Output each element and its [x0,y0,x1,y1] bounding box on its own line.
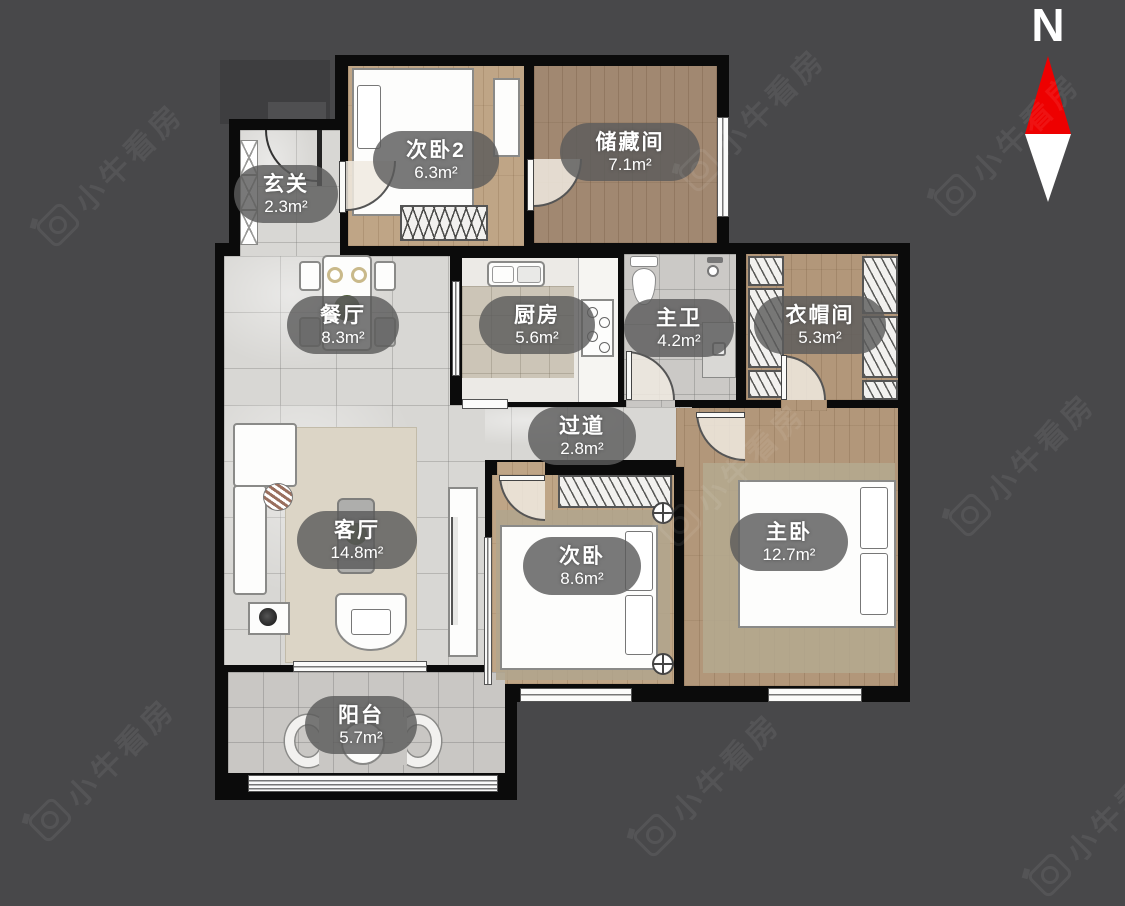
room-name: 次卧 [559,544,605,569]
kitchen-sliding-door [462,399,508,409]
compass: N [1016,2,1080,202]
room-label-keting: 客厅 14.8m² [297,511,417,569]
watermark-text: 小牛看房 [54,686,184,816]
storage-window [717,117,729,217]
watermark-logo-icon [631,811,679,859]
room-area: 14.8m² [331,543,384,563]
watermark-text: 小牛看房 [62,91,192,221]
room-name: 主卧 [766,520,812,545]
chair [299,261,321,291]
watermark: 小牛看房 [22,686,185,849]
watermark-logo-icon [946,491,994,539]
watermark: 小牛看房 [942,381,1105,544]
wardrobe [748,256,784,286]
room-label-canting: 餐厅 8.3m² [287,296,399,354]
bathroom-door-leaf [626,351,632,400]
lounge-chair [335,593,407,651]
striped-pillow [263,483,293,511]
room-name: 客厅 [334,518,380,543]
ceiling-fixture-icon [652,502,674,524]
room-label-chucangjian: 储藏间 7.1m² [560,123,700,181]
room-name: 过道 [559,414,605,439]
balcony-window-band [248,775,498,792]
watermark-logo-icon [34,201,82,249]
watermark-logo-icon [26,796,74,844]
wardrobe-bedroom2-2 [400,205,488,241]
room-area: 2.3m² [264,197,307,217]
room-label-ciwo: 次卧 8.6m² [523,537,641,595]
room-label-zhuwo: 主卧 12.7m² [730,513,848,571]
ceiling-fixture-icon [652,653,674,675]
room-label-xuanguan: 玄关 2.3m² [234,165,338,223]
flower-icon [259,608,277,626]
watermark-logo-icon [931,171,979,219]
room-name: 主卫 [656,306,702,331]
tv-icon [451,517,458,625]
room-name: 厨房 [514,303,560,328]
plate [351,267,367,283]
sofa-body [233,485,267,595]
bedroom2-2-door-leaf [339,161,346,213]
room-area: 5.3m² [798,328,841,348]
watermark-text: 小牛看房 [1054,741,1125,871]
room-area: 6.3m² [414,163,457,183]
bathroom-door-gap [626,400,675,407]
room-area: 5.6m² [515,328,558,348]
chair [374,261,396,291]
room-area: 7.1m² [608,155,651,175]
kitchen-window [452,281,460,376]
room-area: 8.6m² [560,569,603,589]
room-area: 12.7m² [763,545,816,565]
floor-plan: 玄关 2.3m² 次卧2 6.3m² 储藏间 7.1m² 餐厅 8.3m² 厨房… [215,55,910,800]
room-label-ciwo2: 次卧2 6.3m² [373,131,499,189]
bedroom2-side-window [484,537,492,685]
entry-threshold [268,102,326,119]
room-area: 2.8m² [560,439,603,459]
wardrobe [748,370,784,398]
watermark-logo-icon [1026,851,1074,899]
kitchen-sink [487,261,545,287]
room-area: 8.3m² [321,328,364,348]
closet-door-gap [781,400,827,411]
room-area: 4.2m² [657,331,700,351]
pillow [860,553,888,615]
bedside-unit [493,78,520,157]
wardrobe [862,380,898,400]
room-name: 餐厅 [320,303,366,328]
pillow [860,487,888,549]
balcony-sliding-door [293,661,427,672]
room-name: 储藏间 [596,130,665,155]
sofa-chaise [233,423,297,487]
room-label-zhuwei: 主卫 4.2m² [624,299,734,357]
watermark: 小牛看房 [1022,741,1125,904]
room-name: 玄关 [263,172,309,197]
bedroom2-door-leaf [499,475,545,481]
watermark-text: 小牛看房 [974,381,1104,511]
room-name: 阳台 [338,703,384,728]
closet-door-leaf [781,355,787,400]
plate [327,267,343,283]
room-label-chufang: 厨房 5.6m² [479,296,595,354]
master-bottom-window [768,688,862,702]
compass-arrow-icon [1025,56,1071,202]
room-label-yimaojian: 衣帽间 5.3m² [754,296,886,354]
compass-north-label: N [1016,2,1080,48]
room-label-guodao: 过道 2.8m² [528,407,636,465]
bedroom2-bottom-window [520,688,632,702]
pillow [625,595,653,655]
wardrobe-bedroom2 [558,475,672,508]
pillow [357,85,381,149]
master-door-leaf [696,412,745,418]
room-label-yangtai: 阳台 5.7m² [305,696,417,754]
room-name: 次卧2 [406,138,466,163]
floorplan-page: { "compass": { "north_label": "N" }, "wa… [0,0,1125,844]
room-name: 衣帽间 [786,303,855,328]
storage-door-leaf [527,159,534,211]
watermark: 小牛看房 [30,91,193,254]
bedroom2-door-gap [497,462,545,475]
shower-icon [697,257,723,285]
room-area: 5.7m² [339,728,382,748]
